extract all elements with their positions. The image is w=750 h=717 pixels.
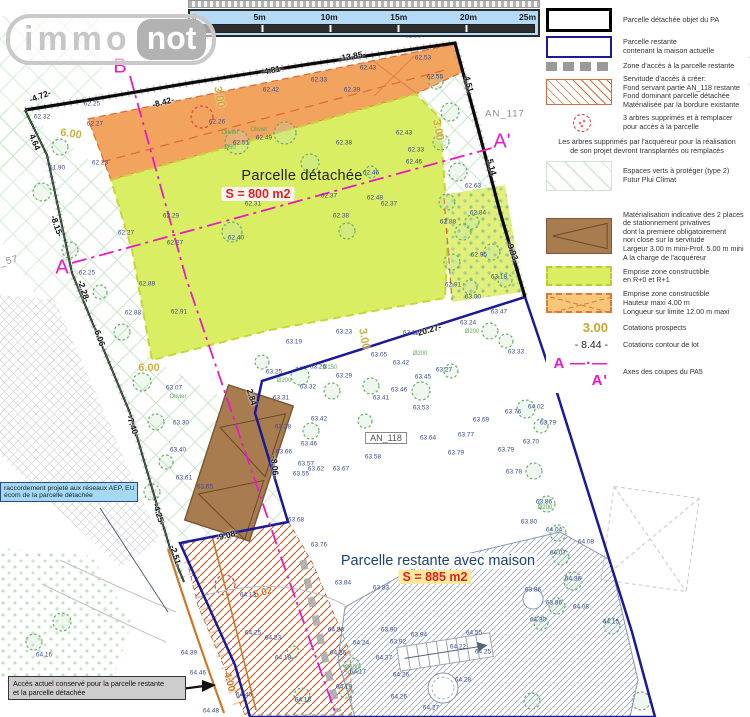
spot-elevation: 62.88 bbox=[139, 281, 155, 288]
spot-elevation: 64.48 bbox=[203, 708, 219, 715]
prospect-dimension: 6.00 bbox=[138, 362, 159, 374]
spot-elevation: 64.17 bbox=[350, 669, 366, 676]
section-axis-label: A' bbox=[493, 131, 510, 154]
spot-elevation: 62.91 bbox=[171, 309, 187, 316]
spot-elevation: 63.67 bbox=[333, 466, 349, 473]
spot-elevation: 62.38 bbox=[336, 140, 352, 147]
legend-swatch-diamond bbox=[546, 161, 618, 191]
legend-label: Servitude d'accès à créer:Fond servant p… bbox=[623, 75, 748, 110]
spot-elevation: 64.16 bbox=[36, 652, 52, 659]
scale-tick-25m: 25m bbox=[519, 12, 536, 22]
legend-swatch-hatch bbox=[546, 79, 618, 105]
spot-elevation: 63.07 bbox=[166, 385, 182, 392]
parcel-id: AN_117 bbox=[485, 109, 525, 120]
spot-elevation: 62.42 bbox=[263, 87, 279, 94]
network-callout-line: raccordement projeté aux réseaux AEP, EU bbox=[4, 485, 134, 492]
tree-label: Ø200 bbox=[413, 351, 428, 357]
legend-label: Emprise zone constructibleHauteur maxi 4… bbox=[623, 290, 748, 316]
spot-elevation: 63.10 bbox=[403, 330, 419, 337]
legend-label-line: Matérialisée par la bordure existante bbox=[623, 101, 748, 110]
spot-elevation: 62.39 bbox=[344, 87, 360, 94]
access-callout-line: Accès actuel conservé pour la parcelle r… bbox=[13, 679, 181, 688]
legend-label-line: Zone d'accès à la parcelle restante bbox=[623, 62, 748, 71]
legend-label-line: Futur Plui Climat bbox=[623, 176, 748, 185]
file-path-strip bbox=[188, 0, 540, 8]
spot-elevation: 62.53 bbox=[415, 55, 431, 62]
spot-elevation: 64.36 bbox=[565, 576, 581, 583]
legend-label-line: contenant la maison actuelle bbox=[623, 47, 748, 56]
spot-elevation: 62.26 bbox=[209, 119, 225, 126]
spot-elevation: 64.40 bbox=[236, 692, 252, 699]
legend-swatch-gold3: 3.00 bbox=[546, 320, 612, 335]
access-callout-line: et la parcelle détachée bbox=[13, 688, 181, 697]
spot-elevation: 63.30 bbox=[173, 420, 189, 427]
spot-elevation: 63.47 bbox=[491, 309, 507, 316]
spot-elevation: 62.31 bbox=[245, 201, 261, 208]
legend-item-gold3: 3.00Cotations prospects bbox=[546, 320, 748, 335]
legend-label-line: Axes des coupes du PA5 bbox=[623, 368, 748, 377]
legend-note-line: de son projet devront transplantés ou re… bbox=[546, 146, 748, 155]
scale-tick-5m: 5m bbox=[253, 12, 265, 22]
spot-elevation: 62.88 bbox=[125, 310, 141, 317]
spot-elevation: 64.39 bbox=[181, 650, 197, 657]
spot-elevation: 62.46 bbox=[363, 170, 379, 177]
legend-label: Parcelle détachée objet du PA bbox=[623, 16, 748, 25]
spot-elevation: 64.55 bbox=[466, 630, 482, 637]
spot-elevation: 63.05 bbox=[371, 352, 387, 359]
legend-item-hatch: Servitude d'accès à créer:Fond servant p… bbox=[546, 75, 748, 110]
spot-elevation: 62.38 bbox=[333, 213, 349, 220]
spot-elevation: 62.37 bbox=[321, 193, 337, 200]
spot-elevation: 64.04 bbox=[546, 527, 562, 534]
spot-elevation: 63.24 bbox=[460, 320, 476, 327]
legend-label-line: Parcelle détachée objet du PA bbox=[623, 16, 748, 25]
spot-elevation: 64.27 bbox=[423, 705, 439, 712]
spot-elevation: 62.95 bbox=[471, 252, 487, 259]
spot-elevation: 62.23 bbox=[92, 160, 108, 167]
legend-note-line: Les arbres supprimés par l'acquéreur pou… bbox=[546, 137, 748, 146]
spot-elevation: 64.24 bbox=[353, 640, 369, 647]
spot-elevation: 62.84 bbox=[470, 210, 486, 217]
legend-item-black: Parcelle détachée objet du PA bbox=[546, 8, 748, 32]
spot-elevation: 63.19 bbox=[286, 339, 302, 346]
spot-elevation: 63.46 bbox=[391, 387, 407, 394]
spot-elevation: 62.37 bbox=[381, 201, 397, 208]
spot-elevation: 64.25 bbox=[245, 630, 261, 637]
spot-elevation: 63.23 bbox=[336, 329, 352, 336]
scale-tick-10m: 10m bbox=[321, 12, 338, 22]
legend-item-axis: A —·— A'Axes des coupes du PA5 bbox=[546, 355, 748, 389]
spot-elevation: 63.45 bbox=[415, 374, 431, 381]
spot-elevation: 63.90 bbox=[381, 627, 397, 634]
spot-elevation: 63.68 bbox=[288, 517, 304, 524]
spot-elevation: 62.88 bbox=[440, 219, 456, 226]
spot-elevation: 63.26 bbox=[310, 364, 326, 371]
tree-label: Olivier bbox=[250, 127, 267, 133]
scale-bar-segments bbox=[193, 24, 535, 33]
tree-label: Olivier bbox=[169, 394, 186, 400]
spot-elevation: 62.27 bbox=[87, 121, 103, 128]
legend-item-orangex: Emprise zone constructibleHauteur maxi 4… bbox=[546, 290, 748, 316]
spot-elevation: 63.58 bbox=[365, 454, 381, 461]
spot-elevation: 64.22 bbox=[450, 644, 466, 651]
legend-swatch-greendash bbox=[546, 266, 618, 286]
legend-label: Matérialisation indicative des 2 placesd… bbox=[623, 211, 748, 263]
spot-elevation: 62.27 bbox=[118, 230, 134, 237]
access-callout: Accès actuel conservé pour la parcelle r… bbox=[8, 676, 186, 700]
spot-elevation: 63.53 bbox=[413, 405, 429, 412]
spot-elevation: 64.26 bbox=[330, 650, 346, 657]
logo-not-badge: not bbox=[137, 19, 207, 60]
spot-elevation: 62.29 bbox=[163, 213, 179, 220]
tree-label: Ø200 bbox=[538, 505, 553, 511]
spot-elevation: 63.25 bbox=[266, 369, 282, 376]
spot-elevation: 62.25 bbox=[79, 270, 95, 277]
spot-elevation: 63.00 bbox=[465, 294, 481, 301]
spot-elevation: 63.84 bbox=[335, 580, 351, 587]
legend-item-blue: Parcelle restantecontenant la maison act… bbox=[546, 36, 748, 58]
legend-swatch-parking bbox=[546, 218, 618, 254]
spot-elevation: 62.63 bbox=[465, 183, 481, 190]
spot-elevation: 64.15 bbox=[603, 619, 619, 626]
detached-parcel-area-value: S = 800 m2 bbox=[222, 187, 295, 201]
spot-elevation: 63.42 bbox=[311, 416, 327, 423]
legend-swatch-black bbox=[546, 8, 618, 32]
spot-elevation: 63.41 bbox=[373, 395, 389, 402]
spot-elevation: 63.42 bbox=[393, 360, 409, 367]
spot-elevation: 63.32 bbox=[300, 384, 316, 391]
spot-elevation: 64.28 bbox=[455, 677, 471, 684]
spot-elevation: 62.51 bbox=[233, 140, 249, 147]
spot-elevation: 63.77 bbox=[458, 432, 474, 439]
spot-elevation: 62.46 bbox=[406, 159, 422, 166]
spot-elevation: 62.33 bbox=[311, 77, 327, 84]
spot-elevation: 63.86 bbox=[546, 600, 562, 607]
logo-immo-text: immo bbox=[24, 20, 131, 59]
spot-elevation: 64.13 bbox=[240, 592, 256, 599]
remaining-parcel-area-value: S = 885 m2 bbox=[399, 570, 472, 584]
spot-elevation: 64.46 bbox=[190, 670, 206, 677]
spot-elevation: 63.46 bbox=[301, 441, 317, 448]
spot-elevation: 62.49 bbox=[256, 135, 272, 142]
legend-label-line: Cotations contour de lot bbox=[623, 341, 748, 350]
scale-tick-15m: 15m bbox=[390, 12, 407, 22]
network-callout: raccordement projeté aux réseaux AEP, EU… bbox=[0, 482, 138, 502]
spot-elevation: 64.18 bbox=[295, 697, 311, 704]
spot-elevation: 64.18 bbox=[275, 655, 291, 662]
spot-elevation: 62.32 bbox=[34, 114, 50, 121]
spot-elevation: 63.92 bbox=[390, 639, 406, 646]
spot-elevation: 63.64 bbox=[420, 435, 436, 442]
spot-elevation: 63.40 bbox=[170, 447, 186, 454]
spot-elevation: 62.40 bbox=[228, 235, 244, 242]
spot-elevation: 64.58 bbox=[328, 627, 344, 634]
legend-item-treered: 3 arbres supprimés et à remplacerpour ac… bbox=[546, 114, 748, 132]
spot-elevation: 64.19 bbox=[336, 684, 352, 691]
spot-elevation: 63.31 bbox=[273, 395, 289, 402]
legend-label: Espaces verts à protéger (type 2)Futur P… bbox=[623, 167, 748, 184]
scale-bar: 05m10m15m20m25m bbox=[188, 0, 540, 37]
tree-label: Ø200 bbox=[465, 329, 480, 335]
spot-elevation: 61.90 bbox=[49, 165, 65, 172]
spot-elevation: 62.33 bbox=[408, 147, 424, 154]
spot-elevation: 64.02 bbox=[528, 404, 544, 411]
legend-label: Zone d'accès à la parcelle restante bbox=[623, 62, 748, 71]
legend-swatch-axis: A —·— A' bbox=[546, 355, 612, 389]
spot-elevation: 63.79 bbox=[498, 447, 514, 454]
spot-elevation: 63.83 bbox=[373, 585, 389, 592]
legend-swatch-cot844: - 8.44 - bbox=[546, 339, 612, 351]
spot-elevation: 64.08 bbox=[578, 539, 594, 546]
legend-swatch-graydash bbox=[546, 62, 618, 71]
spot-elevation: 63.79 bbox=[540, 420, 556, 427]
spot-elevation: 64.25 bbox=[475, 649, 491, 656]
spot-elevation: 63.33 bbox=[508, 349, 524, 356]
legend-label-line: Cotations prospects bbox=[623, 324, 748, 333]
spot-elevation: 64.26 bbox=[393, 672, 409, 679]
legend-item-greendash: Emprise zone constructibleen R+0 et R+1 bbox=[546, 266, 748, 286]
legend-item-parking: Matérialisation indicative des 2 placesd… bbox=[546, 211, 748, 263]
spot-elevation: 62.25 bbox=[84, 101, 100, 108]
immonot-logo: immo not bbox=[6, 14, 216, 65]
scale-bar-box: 05m10m15m20m25m bbox=[188, 9, 540, 37]
spot-elevation: 63.70 bbox=[523, 439, 539, 446]
spot-elevation: 63.62 bbox=[308, 466, 324, 473]
legend-item-graydash: Zone d'accès à la parcelle restante bbox=[546, 62, 748, 71]
spot-elevation: 62.91 bbox=[445, 282, 461, 289]
spot-elevation: 64.26 bbox=[391, 694, 407, 701]
spot-elevation: 63.55 bbox=[293, 471, 309, 478]
scale-tick-20m: 20m bbox=[460, 12, 477, 22]
spot-elevation: 63.61 bbox=[176, 475, 192, 482]
legend-label: Parcelle restantecontenant la maison act… bbox=[623, 38, 748, 55]
legend-item-cot844: - 8.44 -Cotations contour de lot bbox=[546, 339, 748, 351]
legend-label: 3 arbres supprimés et à remplacerpour ac… bbox=[623, 114, 748, 131]
legend-label: Cotations contour de lot bbox=[623, 341, 748, 350]
spot-elevation: 63.28 bbox=[275, 424, 291, 431]
legend-label-line: Longueur sur limite 12.00 m maxi bbox=[623, 308, 748, 317]
spot-elevation: 64.30 bbox=[530, 617, 546, 624]
spot-elevation: 63.86 bbox=[525, 587, 541, 594]
spot-elevation: 63.65 bbox=[197, 484, 213, 491]
spot-elevation: 63.29 bbox=[336, 373, 352, 380]
spot-elevation: 64.07 bbox=[550, 550, 566, 557]
legend-label: Emprise zone constructibleen R+0 et R+1 bbox=[623, 268, 748, 285]
legend-label-line: pour accès à la parcelle bbox=[623, 123, 748, 132]
legend-swatch-blue bbox=[546, 36, 618, 58]
legend-item-diamond: Espaces verts à protéger (type 2)Futur P… bbox=[546, 161, 748, 191]
spot-elevation: 63.78 bbox=[506, 469, 522, 476]
legend-label: Axes des coupes du PA5 bbox=[623, 368, 748, 377]
spot-elevation: 64.23 bbox=[265, 635, 281, 642]
spot-elevation: 62.43 bbox=[396, 130, 412, 137]
tree-label: Olivier bbox=[221, 130, 238, 136]
spot-elevation: 62.43 bbox=[360, 65, 376, 72]
network-callout-line: écom de la parcelle détachée bbox=[4, 492, 134, 499]
legend-panel: Parcelle détachée objet du PAParcelle re… bbox=[546, 8, 748, 393]
legend-note: Les arbres supprimés par l'acquéreur pou… bbox=[546, 137, 748, 155]
legend-label-line: A la charge de l'acquéreur bbox=[623, 254, 748, 263]
spot-elevation: 63.94 bbox=[411, 632, 427, 639]
spot-elevation: 63.80 bbox=[521, 519, 537, 526]
spot-elevation: 63.18 bbox=[491, 274, 507, 281]
division-plan-page: immo not 05m10m15m20m25m Parcelle détach… bbox=[0, 0, 750, 717]
legend-label-line: en R+0 et R+1 bbox=[623, 276, 748, 285]
spot-elevation: 63.76 bbox=[505, 409, 521, 416]
spot-elevation: 64.37 bbox=[376, 655, 392, 662]
spot-elevation: 63.86 bbox=[536, 499, 552, 506]
spot-elevation: 63.69 bbox=[473, 417, 489, 424]
tree-label: Ø200 bbox=[277, 378, 292, 384]
detached-parcel-title: Parcelle détachée bbox=[241, 168, 362, 184]
spot-elevation: 62.27 bbox=[167, 240, 183, 247]
section-axis-label: A bbox=[55, 257, 68, 280]
spot-elevation: 64.08 bbox=[573, 604, 589, 611]
legend-swatch-treered bbox=[546, 114, 618, 132]
spot-elevation: 63.66 bbox=[276, 449, 292, 456]
spot-elevation: 63.76 bbox=[311, 542, 327, 549]
spot-elevation: 62.55 bbox=[427, 74, 443, 81]
spot-elevation: 63.27 bbox=[436, 367, 452, 374]
legend-label: Cotations prospects bbox=[623, 324, 748, 333]
legend-swatch-orangex bbox=[546, 293, 618, 313]
parcel-id: AN_118 bbox=[365, 432, 407, 444]
spot-elevation: 63.79 bbox=[448, 450, 464, 457]
remaining-parcel-title: Parcelle restante avec maison bbox=[339, 553, 537, 569]
